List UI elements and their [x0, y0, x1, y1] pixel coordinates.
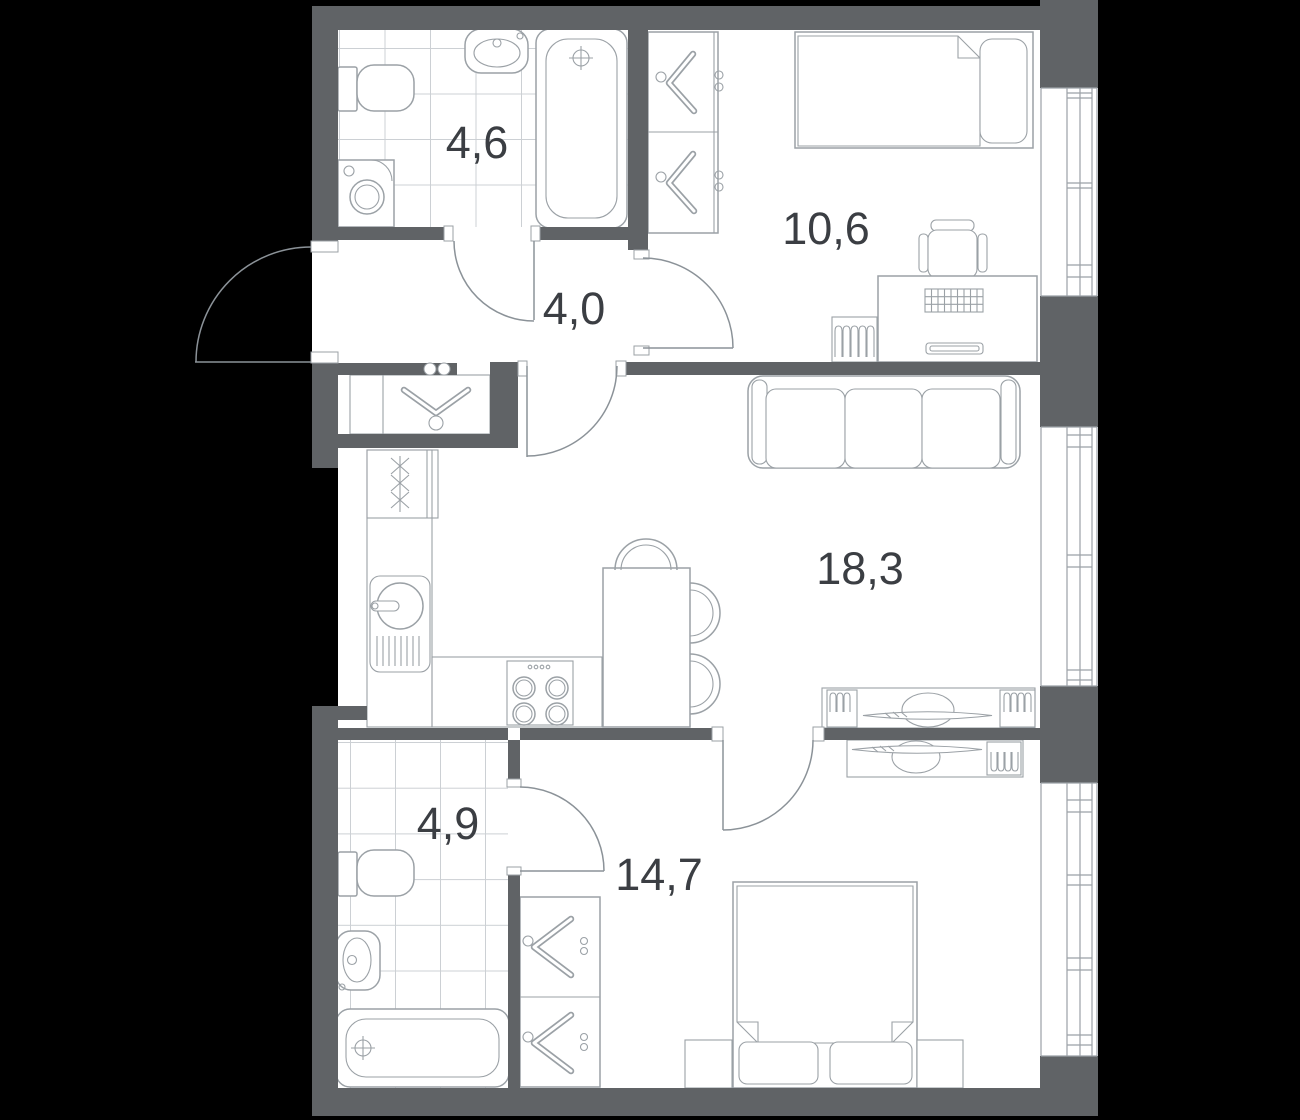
room-area-label-bedroom-top: 10,6 — [782, 203, 870, 254]
wardrobe-icon — [520, 897, 600, 1087]
bathtub-icon — [336, 1009, 509, 1087]
sofa-icon — [748, 376, 1020, 468]
washbasin-icon — [336, 931, 380, 990]
washing-machine-icon — [338, 160, 394, 227]
refrigerator-icon — [367, 450, 438, 518]
double-bed-icon — [733, 882, 917, 1088]
toilet-icon — [338, 850, 414, 896]
washbasin-icon — [465, 29, 528, 73]
wardrobe-icon — [648, 32, 723, 233]
room-area-label-bathroom-top: 4,6 — [446, 117, 509, 168]
room-area-label-bedroom-bottom: 14,7 — [615, 849, 703, 900]
room-area-label-hallway: 4,0 — [543, 283, 606, 334]
toilet-icon — [338, 65, 414, 111]
kitchen-sink-icon — [370, 576, 430, 672]
tv-stand-icon — [847, 740, 1023, 777]
room-area-label-kitchen-living: 18,3 — [816, 543, 904, 594]
tv-stand-icon — [822, 688, 1035, 728]
bathtub-icon — [536, 29, 627, 228]
desk-icon — [878, 276, 1037, 362]
single-bed-icon — [795, 32, 1033, 148]
floor-plan: 4,6 10,6 4,0 18,3 4,9 14,7 — [0, 0, 1300, 1120]
room-area-label-bathroom-bottom: 4,9 — [417, 798, 480, 849]
dining-table-icon — [603, 568, 690, 727]
